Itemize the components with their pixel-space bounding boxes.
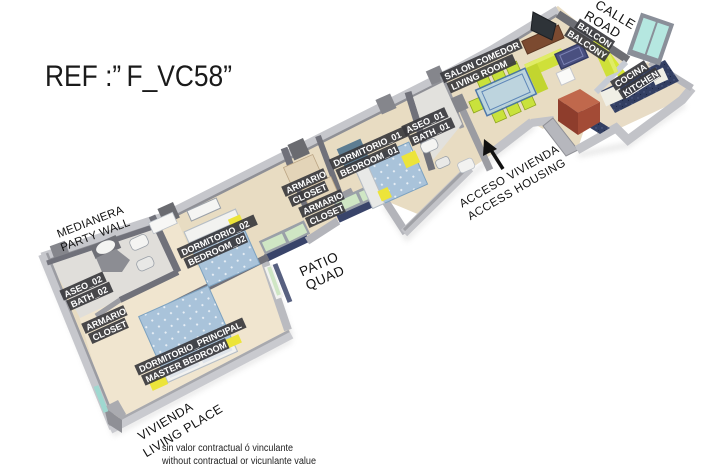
svg-text:sin valor contractual ó vincul: sin valor contractual ó vinculante [162,443,293,454]
svg-text:REF :” F_VC58”: REF :” F_VC58” [45,60,232,93]
svg-text:without contractual or vicunla: without contractual or vicunlante value [161,456,316,467]
